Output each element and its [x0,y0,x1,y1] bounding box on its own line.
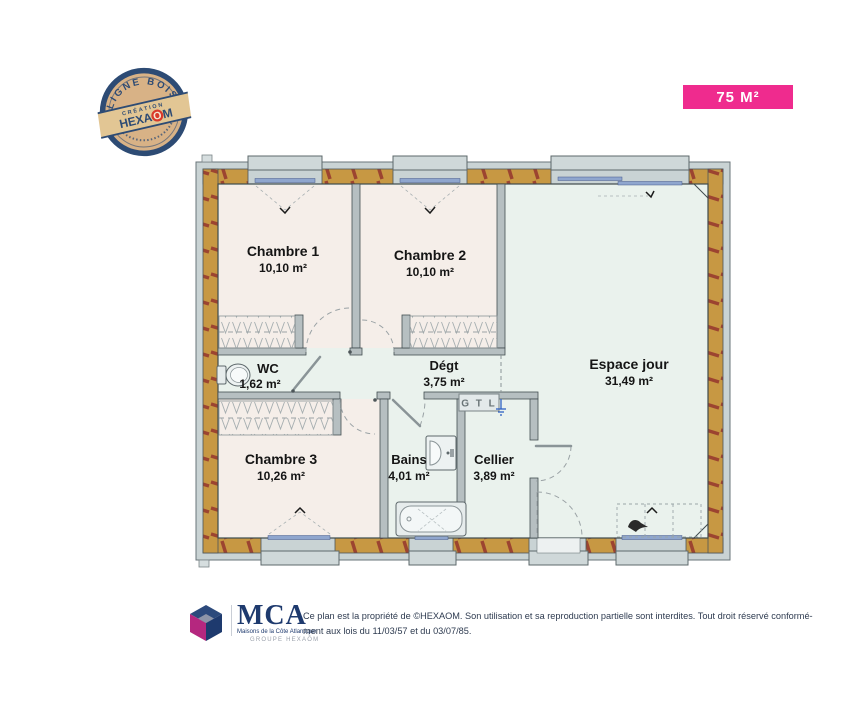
svg-text:4,01 m²: 4,01 m² [388,469,429,483]
mca-logo: MCA Maisons de la Côte Atlantique GROUPE… [186,601,301,645]
floor-plan-page: 75 M² LIGNE BOIS CRÉATION HEXA O M [0,0,860,713]
copyright-disclaimer: Ce plan est la propriété de ©HEXAOM. Son… [303,609,813,638]
svg-text:Chambre 1: Chambre 1 [247,243,320,259]
svg-text:Chambre 3: Chambre 3 [245,451,318,467]
bathtub-icon [396,502,466,536]
svg-text:3,75 m²: 3,75 m² [423,375,464,389]
svg-text:10,10 m²: 10,10 m² [406,265,454,279]
svg-text:Espace jour: Espace jour [589,356,669,372]
svg-text:31,49 m²: 31,49 m² [605,374,653,388]
floor-plan-drawing: G T L Chambre 1 10,10 m² Chambre 2 10,10… [0,0,860,713]
window-chambre1 [248,156,322,170]
mca-wordmark: MCA [237,600,307,632]
corner-marker-bottom-left [199,560,209,567]
svg-text:10,10 m²: 10,10 m² [259,261,307,275]
window-espace-jour [616,551,688,565]
svg-text:Cellier: Cellier [474,452,514,467]
washbasin-icon [426,436,456,470]
mca-cube-icon [186,603,226,643]
window-chambre2 [393,156,467,170]
svg-text:3,89 m²: 3,89 m² [473,469,514,483]
corner-marker-top-left [202,155,212,162]
disclaimer-line-1: Ce plan est la propriété de ©HEXAOM. Son… [303,609,813,624]
window-chambre3 [261,551,339,565]
svg-text:10,26 m²: 10,26 m² [257,469,305,483]
disclaimer-line-2: ment aux lois du 11/03/57 et du 03/07/85… [303,624,813,639]
svg-text:Dégt: Dégt [430,358,460,373]
entrance-threshold [537,538,580,553]
svg-text:WC: WC [257,361,279,376]
gtl-label: G T L [461,399,497,410]
svg-text:Chambre 2: Chambre 2 [394,247,467,263]
logo-divider [231,605,232,636]
svg-text:Bains: Bains [391,452,426,467]
window-bains [409,551,456,565]
bay-window-espace-jour [551,156,689,170]
svg-text:1,62 m²: 1,62 m² [239,377,280,391]
